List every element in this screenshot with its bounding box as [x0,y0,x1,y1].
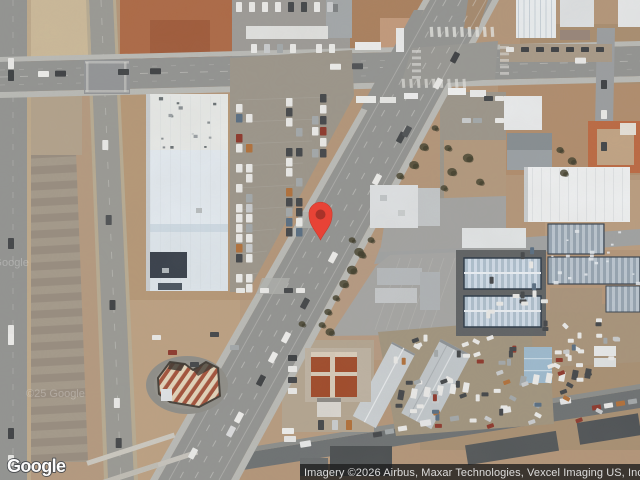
svg-text:©25 Google: ©25 Google [0,257,29,269]
svg-text:Google: Google [7,456,66,476]
svg-text:©25 Google: ©25 Google [26,388,85,400]
svg-text:Imagery ©2026 Airbus, Maxar Te: Imagery ©2026 Airbus, Maxar Technologies… [304,467,640,479]
